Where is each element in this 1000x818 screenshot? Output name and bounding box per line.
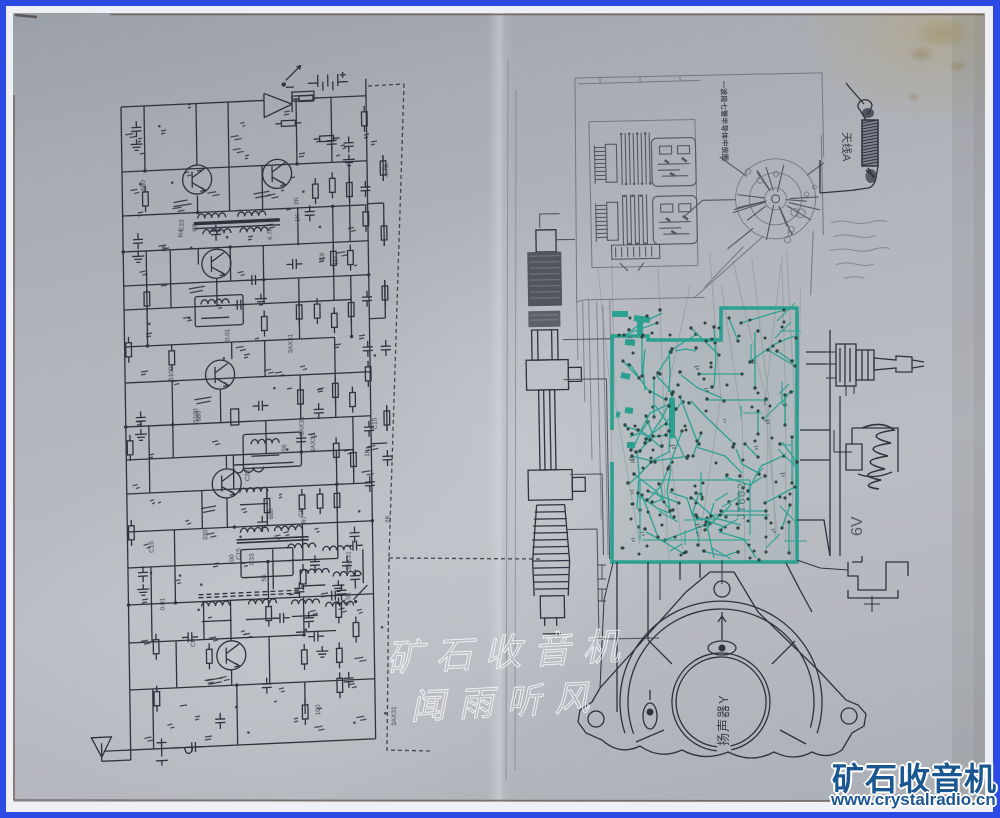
svg-text:R7: R7 xyxy=(333,255,340,264)
svg-text:0.01: 0.01 xyxy=(224,328,231,341)
svg-text:一波段七管半导体中放图: 一波段七管半导体中放图 xyxy=(719,81,730,161)
svg-text:6V: 6V xyxy=(849,516,866,536)
svg-text:C33: C33 xyxy=(179,219,186,232)
svg-text:1K: 1K xyxy=(364,448,371,457)
svg-text:56: 56 xyxy=(261,574,268,582)
svg-text:3AX31: 3AX31 xyxy=(299,416,306,436)
svg-text:C33: C33 xyxy=(249,553,256,566)
svg-text:3AX31: 3AX31 xyxy=(346,551,353,571)
svg-text:C9: C9 xyxy=(298,508,305,517)
svg-text:680: 680 xyxy=(140,180,147,192)
svg-text:C15: C15 xyxy=(236,547,243,560)
svg-text:1K: 1K xyxy=(295,213,302,222)
svg-text:4.7K: 4.7K xyxy=(383,163,390,177)
svg-text:扬声器Y: 扬声器Y xyxy=(716,694,731,746)
svg-text:680: 680 xyxy=(196,410,203,422)
svg-text:3AX31: 3AX31 xyxy=(391,706,398,726)
svg-text:5100: 5100 xyxy=(168,366,175,381)
svg-text:C15: C15 xyxy=(372,417,379,430)
svg-text:C9: C9 xyxy=(319,252,326,261)
svg-text:3AX31: 3AX31 xyxy=(288,333,295,353)
svg-text:JT602: JT602 xyxy=(737,482,749,520)
svg-text:330: 330 xyxy=(202,529,209,541)
svg-text:100: 100 xyxy=(229,554,236,566)
svg-text:C9: C9 xyxy=(190,638,197,647)
svg-text:3AX31: 3AX31 xyxy=(310,432,317,452)
svg-text:2K: 2K xyxy=(293,196,300,205)
svg-text:680: 680 xyxy=(268,508,275,520)
svg-text:天线A: 天线A xyxy=(840,132,854,162)
svg-text:0.01: 0.01 xyxy=(159,597,166,610)
svg-text:C9: C9 xyxy=(192,223,199,232)
svg-text:100: 100 xyxy=(315,704,322,716)
svg-text:56: 56 xyxy=(281,444,288,452)
svg-text:C33: C33 xyxy=(245,469,252,482)
